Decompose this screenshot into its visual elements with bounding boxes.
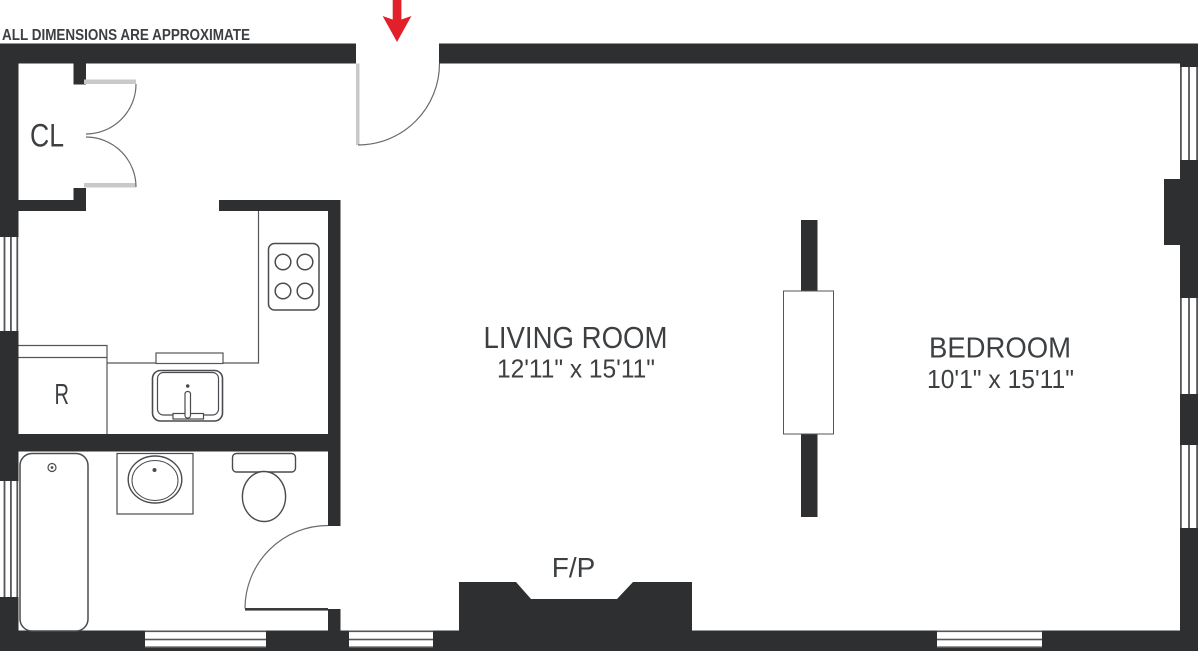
svg-text:10'1" x 15'11": 10'1" x 15'11" [927, 364, 1074, 394]
svg-text:CL: CL [30, 118, 64, 154]
svg-text:BEDROOM: BEDROOM [929, 333, 1071, 365]
svg-text:R: R [55, 379, 70, 411]
svg-text:ALL DIMENSIONS ARE APPROXIMATE: ALL DIMENSIONS ARE APPROXIMATE [2, 27, 250, 44]
svg-text:F/P: F/P [552, 552, 596, 583]
svg-text:LIVING ROOM: LIVING ROOM [484, 321, 668, 355]
svg-text:12'11" x 15'11": 12'11" x 15'11" [497, 354, 655, 384]
